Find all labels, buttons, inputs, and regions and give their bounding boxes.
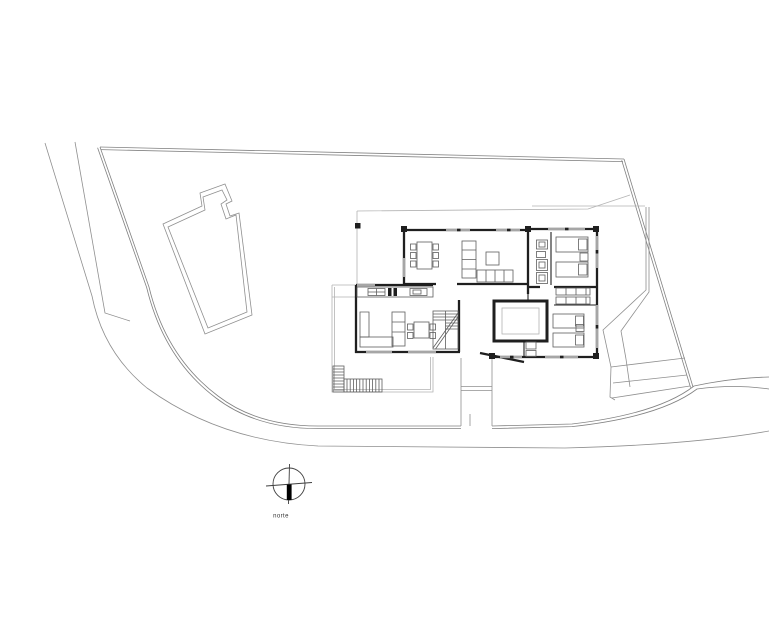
column [593,226,599,232]
column [355,223,361,229]
ramp-left-edge [603,207,646,400]
cooktop-grid [368,289,385,296]
north-arrow-icon [287,485,292,501]
island-divisions [392,322,405,332]
sink-basin [413,290,421,294]
bath-fixture [526,342,536,349]
coffee-table [486,252,499,265]
pool-outer-outline [163,184,252,334]
boundary-top-outer [100,147,624,159]
appliance-block [394,288,398,296]
dining-chair [411,244,417,250]
site-plan-drawing: norte [0,0,769,625]
dining-chair [433,261,439,267]
street-outer-edge [45,143,769,448]
dining-chair [433,244,439,250]
column [401,226,407,232]
column [593,353,599,359]
bath-sink-basin [539,242,545,247]
pillow [579,239,588,250]
sofa-cushion-lines [462,250,476,269]
boundary-right-outer [624,159,693,387]
bath-shelf [537,252,546,258]
patio-inner-outline [502,308,539,334]
column [525,226,531,232]
wardrobe [556,288,590,295]
kitchen-appliance-blocks [388,288,397,296]
dining-chair [411,253,417,259]
ramp-cross-line-2 [613,375,687,383]
pool-inner-outline [168,190,247,328]
toilet [537,260,548,271]
garden-stair-treads-h [347,379,379,392]
site-plan-page: norte [0,0,769,625]
sink [410,289,427,296]
boundary-right-inner [622,160,691,387]
dining-chair [411,261,417,267]
side-porch-lines [332,285,357,297]
bath-sink [537,240,548,249]
upper-floor-outline-top [357,195,630,211]
kitchen-l-counter [360,312,369,337]
toilet-bowl [539,262,545,268]
bath-fixture [526,351,536,357]
ramp-cross-line-1 [611,358,685,367]
driveway-ramp [603,207,690,400]
kitchen-island [392,312,405,346]
nook-table [414,322,429,338]
compass-label: norte [273,514,289,520]
boundary-left-bottom-inner [100,147,769,426]
entrance-path [461,357,492,426]
wardrobe-dividers [566,297,586,304]
kitchen-l-counter-base [360,337,393,347]
column [489,353,495,359]
pillow [576,335,584,345]
nook-chair [408,324,414,330]
wardrobe-dividers [566,288,586,295]
pool [163,184,252,334]
street-lines [45,142,769,448]
sidewalk-line [75,142,130,321]
nook-chair [408,333,414,339]
dining-table [417,242,432,269]
west-terrace-outline-outer [332,285,433,392]
north-compass: norte [266,464,312,520]
boundary-top-inner [101,150,623,162]
bidet [537,273,548,284]
appliance-block [388,288,392,296]
bidet-bowl [539,275,545,281]
nightstand [580,253,588,261]
sofa-cushion-lines [486,270,504,282]
pillow [579,264,588,275]
dining-chair [433,253,439,259]
ramp-lower-right-edge [626,359,630,387]
ramp-right-edge [621,207,649,359]
wardrobe [556,297,590,304]
